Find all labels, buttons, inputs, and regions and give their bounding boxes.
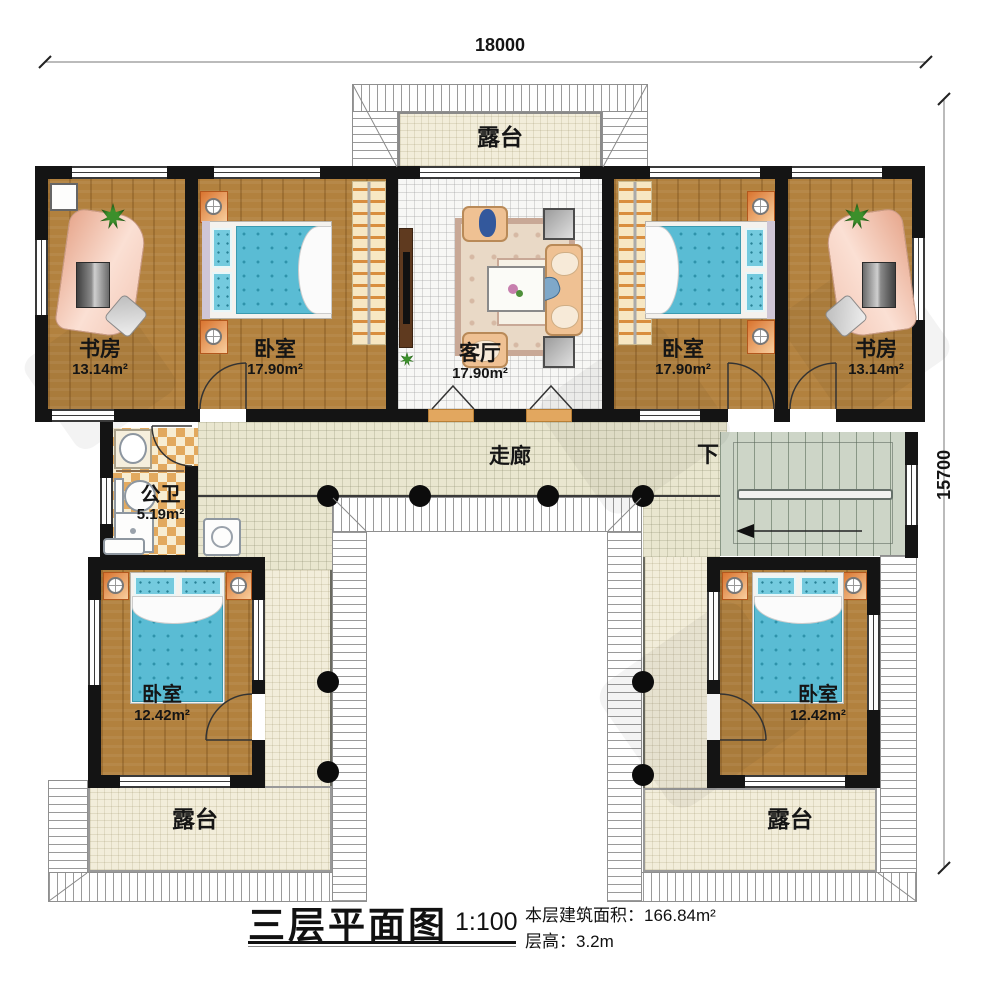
column [317, 671, 339, 693]
column [317, 761, 339, 783]
terrace-br-roof-right [880, 555, 917, 902]
window [792, 166, 882, 179]
floor-area-value: 166.84m² [644, 906, 716, 925]
courtyard-eave-top [332, 497, 642, 532]
top-terrace-roof-top [352, 84, 648, 112]
pillow [134, 576, 176, 596]
washer-drum-icon [211, 526, 233, 548]
shower-drain-icon [130, 528, 136, 534]
floor-area-line: 本层建筑面积：166.84m² [525, 901, 716, 926]
terrace-top-label: 露台 [430, 125, 570, 150]
headboard [767, 221, 775, 319]
tv-icon [403, 252, 410, 324]
lamp-icon [845, 577, 862, 594]
bedroom-bl-top-wall [88, 557, 265, 570]
bed-sheet [298, 226, 332, 314]
window [214, 166, 320, 179]
wall-segment [836, 409, 925, 422]
bedroom-right-label: 卧室 [633, 338, 733, 361]
sink-icon [119, 433, 147, 464]
stairs-down-label: 下 [692, 443, 724, 467]
column [317, 485, 339, 507]
window [52, 409, 114, 422]
bedroom-left-label: 卧室 [225, 338, 325, 361]
wall-segment [774, 409, 790, 422]
vanity-basin [103, 538, 145, 555]
window [88, 600, 101, 685]
lamp-icon [726, 577, 743, 594]
study-right-label: 书房 [826, 338, 926, 361]
plan-scale: 1:100 [455, 908, 518, 937]
study-right-area: 13.14m² [821, 362, 931, 379]
wall-segment [246, 409, 428, 422]
bedroom-br-label: 卧室 [768, 684, 868, 706]
lamp-icon [107, 577, 124, 594]
lamp-icon [230, 577, 247, 594]
window [707, 592, 720, 680]
wall-bedroom-living-left [386, 179, 398, 409]
person [479, 209, 496, 237]
floor-height-line: 层高：3.2m [525, 927, 614, 952]
title-underline-thin [248, 946, 516, 947]
window [745, 775, 845, 788]
wall-bedroom-study-right [775, 179, 788, 409]
pillow [756, 576, 796, 596]
door-sill [428, 409, 474, 422]
window [35, 240, 48, 315]
bedroom-bl-area: 12.42m² [107, 708, 217, 725]
computer-monitor [862, 262, 896, 308]
pillow [745, 272, 765, 312]
pillow [745, 228, 765, 268]
dimension-width-label: 18000 [430, 36, 570, 56]
window [120, 775, 230, 788]
headboard [202, 221, 210, 319]
column [537, 485, 559, 507]
window [650, 166, 760, 179]
corner-cabinet [50, 183, 78, 211]
lamp-icon [205, 328, 222, 345]
pillow [212, 228, 232, 268]
column [632, 485, 654, 507]
bedroom-left-area: 17.90m² [220, 362, 330, 379]
side-table [543, 336, 575, 368]
wall-study-bedroom-left [185, 179, 198, 409]
pillow [800, 576, 840, 596]
door-sill [526, 409, 572, 422]
towel-bar [116, 470, 184, 472]
courtyard-eave-left [332, 497, 367, 902]
floor-height-value: 3.2m [576, 932, 614, 951]
terrace-bl-label: 露台 [125, 807, 265, 832]
window [905, 465, 918, 525]
window [640, 409, 700, 422]
pillow [180, 576, 222, 596]
wardrobe [352, 181, 386, 345]
terrace-br-label: 露台 [720, 807, 860, 832]
title-underline [248, 941, 516, 944]
living-room-area: 17.90m² [425, 366, 535, 383]
bedroom-br-area: 12.42m² [763, 708, 873, 725]
wall-segment [474, 409, 526, 422]
wall-living-bedroom-right [602, 179, 614, 409]
bathroom-label: 公卫 [118, 484, 203, 506]
bedroom-bl-label: 卧室 [112, 684, 212, 706]
window [72, 166, 167, 179]
pillow [212, 272, 232, 312]
column [632, 671, 654, 693]
dimension-height-label: 15700 [935, 435, 955, 515]
floor-height-label: 层高： [525, 932, 576, 951]
side-table [543, 208, 575, 240]
floor-area-label: 本层建筑面积： [525, 906, 644, 925]
column [632, 764, 654, 786]
window [867, 615, 880, 710]
corridor-label: 走廊 [465, 445, 555, 468]
computer-monitor [76, 262, 110, 308]
column [409, 485, 431, 507]
bathroom-area: 5.19m² [113, 507, 208, 524]
stairs-handrail [737, 489, 893, 500]
window [100, 478, 113, 524]
bedroom-br-top-wall [707, 557, 880, 570]
lamp-icon [205, 198, 222, 215]
window [252, 600, 265, 680]
lamp-icon [752, 198, 769, 215]
living-room-label: 客厅 [430, 342, 530, 365]
floor-plan: 18000 15700 露台 书房 13.14m² 卧室 17.90m² 客厅 … [0, 0, 1000, 990]
window [420, 166, 580, 179]
study-left-area: 13.14m² [45, 362, 155, 379]
terrace-br-roof-bottom [610, 872, 917, 902]
flower-leaf-icon [516, 290, 523, 297]
corridor-right-area [643, 497, 720, 557]
study-left-label: 书房 [50, 338, 150, 361]
lamp-icon [752, 328, 769, 345]
bedroom-right-area: 17.90m² [628, 362, 738, 379]
